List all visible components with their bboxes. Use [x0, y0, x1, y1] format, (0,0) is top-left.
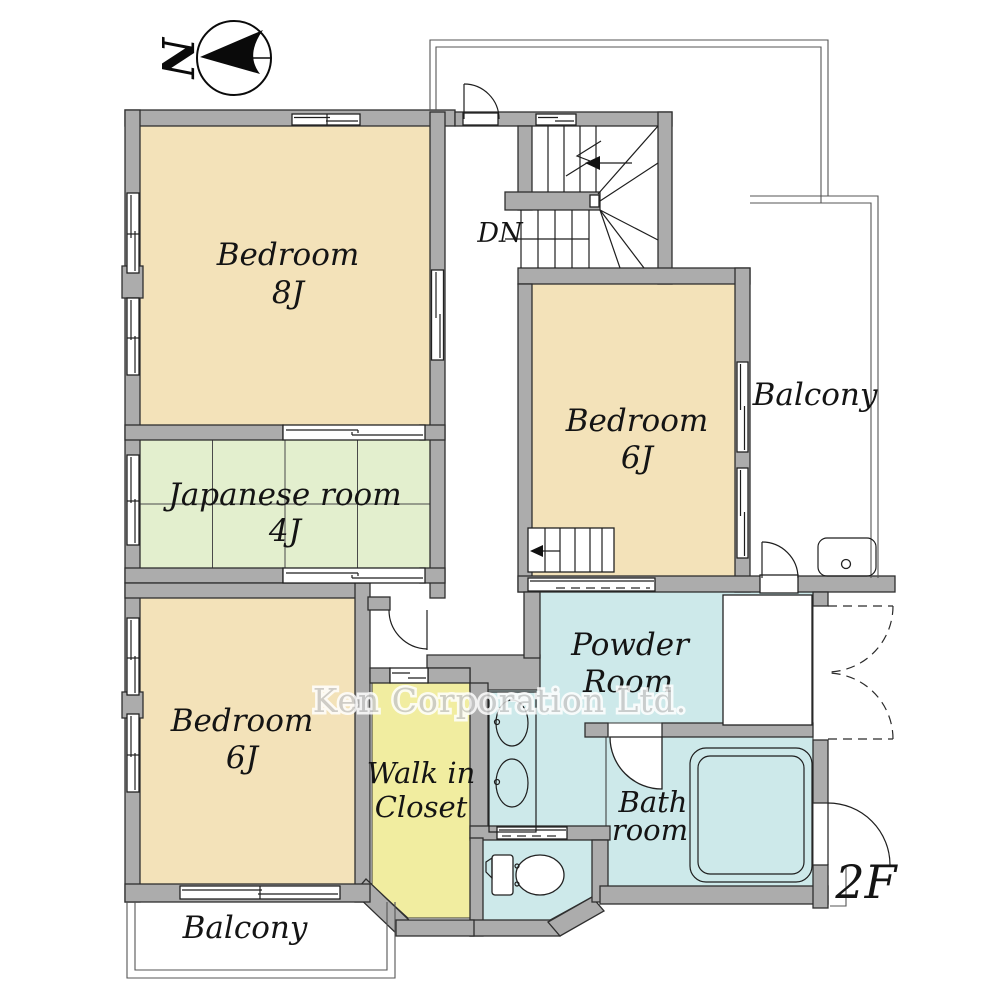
floor-plan-page: DN [0, 0, 1000, 1000]
window-top-2 [536, 114, 576, 125]
stairs-dn-label: DN [476, 218, 524, 249]
window-right-1 [737, 362, 748, 452]
powder-room-label-1: Powder [570, 627, 691, 663]
bedroom-steps [528, 528, 614, 572]
bedroom-6j-right-label: Bedroom [565, 403, 709, 439]
walk-in-closet-label-2: Closet [375, 790, 468, 824]
window-bottom [180, 886, 340, 899]
japanese-room-label: Japanese room [162, 477, 401, 513]
toilet [486, 855, 564, 895]
bedroom-6j-left-label: Bedroom [170, 703, 314, 739]
bedroom-8j-size: 8J [272, 275, 306, 311]
sliding-door-hall-wall [432, 270, 444, 360]
compass: N [151, 21, 271, 95]
compass-north-label: N [151, 36, 202, 80]
window-left-4 [127, 618, 139, 695]
watermark: Ken Corporation Ltd. [313, 681, 688, 720]
sliding-door-japanese-bedroom6j [283, 568, 425, 583]
window-top-1 [292, 114, 360, 125]
door-hall-top [463, 84, 499, 125]
balcony-right-label: Balcony [752, 377, 878, 413]
window-left-3 [127, 455, 139, 545]
door-bedroom6j-left [389, 610, 427, 650]
window-left-2 [127, 298, 139, 375]
bath-room-label-2: room [612, 813, 688, 847]
walk-in-closet-label-1: Walk in [367, 756, 476, 790]
door-french-dashed [828, 606, 893, 739]
bedroom-6j-left-size: 6J [226, 740, 260, 776]
balcony-sink [818, 538, 876, 576]
bedroom-6j-right-size: 6J [621, 440, 655, 476]
japanese-room-size: 4J [268, 513, 303, 549]
door-balcony-right [760, 542, 798, 593]
powder-closet [723, 595, 812, 725]
stair-direction-arrow [566, 141, 632, 176]
floor-label: 2F [834, 855, 898, 909]
floor-plan-canvas: DN [0, 0, 1000, 1000]
window-left-5 [127, 714, 139, 792]
sliding-door-toilet [497, 827, 567, 839]
bedroom-8j-label: Bedroom [216, 237, 360, 273]
sliding-door-powder-entrance [528, 578, 655, 591]
window-right-2 [737, 468, 748, 558]
window-left-1 [127, 193, 139, 273]
sliding-door-bedroom8j-japanese [283, 425, 425, 440]
balcony-bottom-label: Balcony [182, 910, 308, 946]
